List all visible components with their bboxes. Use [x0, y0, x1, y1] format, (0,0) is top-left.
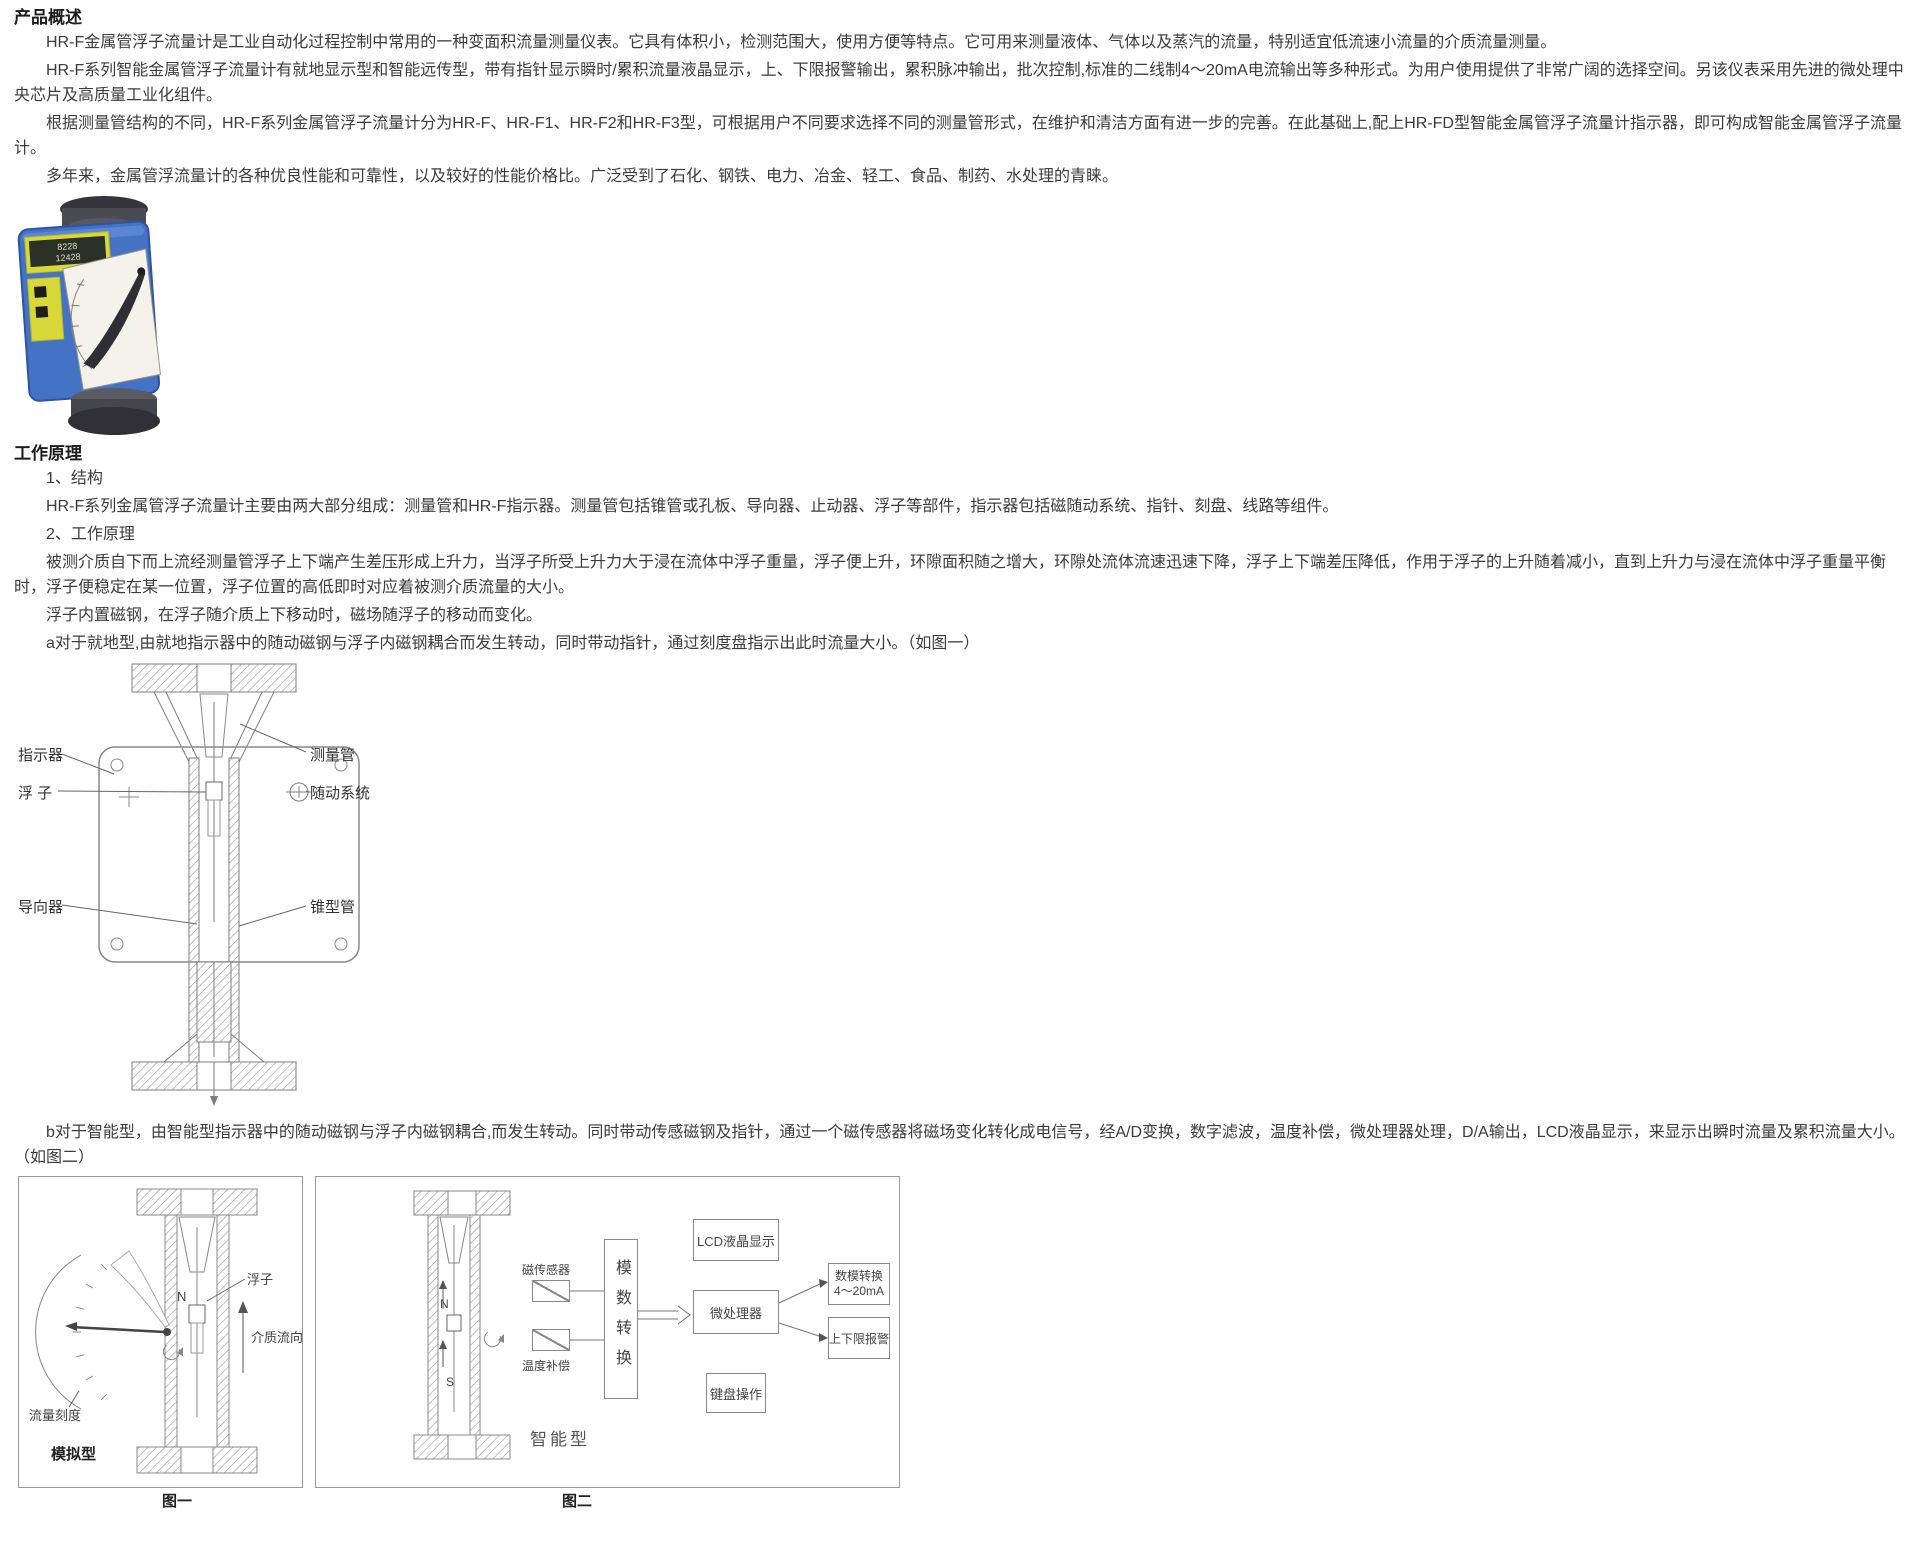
figure2-panel: N S 磁传感器 温度补偿 模数转换 LCD液晶显示 微处理器 键盘操作 数模转…	[315, 1176, 900, 1488]
center-cross	[119, 787, 139, 807]
lcd-line1: 8228	[57, 241, 78, 252]
fig2-microprocessor-box: 微处理器	[693, 1290, 779, 1334]
photo-button-1	[34, 286, 47, 298]
figure1-caption: 图一	[142, 1490, 212, 1511]
fig1-dial-wedge	[111, 1251, 169, 1327]
fig2-ad-converter-text: 模数转换	[609, 1259, 633, 1379]
overview-heading: 产品概述	[14, 6, 1906, 30]
fig2-rotation-mark	[484, 1332, 500, 1347]
principle-item1-title: 1、结构	[14, 466, 1906, 491]
fig2-magnetic-sensor-box	[532, 1280, 570, 1302]
label-indicator: 指示器	[18, 744, 63, 765]
figure-captions: 图一 图二	[14, 1490, 1906, 1516]
leader-float	[58, 791, 206, 792]
overview-paragraph-4: 多年来，金属管浮流量计的各种优良性能和可靠性，以及较好的性能价格比。广泛受到了石…	[14, 164, 1906, 189]
float-element	[206, 782, 222, 800]
leader-cone-tube	[239, 906, 306, 926]
fig1-type-label: 模拟型	[51, 1443, 96, 1464]
fig1-needle	[71, 1327, 165, 1332]
label-measuring-tube: 测量管	[310, 744, 355, 765]
fig2-limit-alarm-box: 上下限报警	[828, 1317, 890, 1359]
fig2-da-output-line1: 数模转换	[835, 1269, 883, 1284]
fig2-tube-wall-left	[428, 1215, 438, 1435]
photo-bottom-flange	[68, 388, 160, 435]
fig2-temperature-compensation-label: 温度补偿	[522, 1357, 570, 1374]
principle-smart-type-text: b对于智能型，由智能型指示器中的随动磁钢与浮子内磁钢耦合,而发生转动。同时带动传…	[14, 1120, 1906, 1170]
principle-item2-title: 2、工作原理	[14, 522, 1906, 547]
fig2-float	[447, 1315, 461, 1331]
photo-button-2	[35, 306, 48, 318]
principle-local-type-text: a对于就地型,由就地指示器中的随动磁钢与浮子内磁钢耦合而发生转动，同时带动指针，…	[14, 631, 1906, 656]
principle-item2-text: 被测介质自下而上流经测量管浮子上下端产生差压形成上升力，当浮子所受上升力大于浸在…	[14, 550, 1906, 600]
structure-diagram-graphic	[14, 662, 494, 1120]
label-follower-system: 随动系统	[310, 782, 370, 803]
leader-measuring-tube	[240, 724, 306, 752]
overview-paragraph-3: 根据测量管结构的不同，HR-F系列金属管浮子流量计分为HR-F、HR-F1、HR…	[14, 111, 1906, 161]
structure-diagram: 指示器 浮 子 导向器 测量管 随动系统 锥型管	[14, 662, 494, 1120]
overview-paragraph-2: HR-F系列智能金属管浮子流量计有就地显示型和智能远传型，带有指针显示瞬时/累积…	[14, 58, 1906, 108]
fig2-conn-mcu-da	[779, 1283, 822, 1303]
label-guide: 导向器	[18, 896, 63, 917]
fig2-magnetic-sensor-label: 磁传感器	[522, 1261, 570, 1278]
fig2-lcd-display-box: LCD液晶显示	[693, 1219, 779, 1261]
fig2-s-label: S	[446, 1375, 454, 1389]
document-page: 产品概述 HR-F金属管浮子流量计是工业自动化过程控制中常用的一种变面积流量测量…	[0, 0, 1920, 1544]
leader-guide	[62, 905, 197, 924]
label-cone-tube: 锥型管	[310, 896, 355, 917]
flowmeter-photo-graphic: 8228 12428	[16, 193, 216, 440]
fig2-keyboard-box: 键盘操作	[706, 1373, 766, 1413]
fig1-flow-direction-label: 介质流向	[251, 1327, 303, 1346]
principle-item1-text: HR-F系列金属管浮子流量计主要由两大部分组成：测量管和HR-F指示器。测量管包…	[14, 494, 1906, 519]
fig2-ad-converter-box: 模数转换	[604, 1239, 638, 1399]
fig2-type-label: 智能型	[530, 1425, 590, 1450]
overview-paragraph-1: HR-F金属管浮子流量计是工业自动化过程控制中常用的一种变面积流量测量仪表。它具…	[14, 30, 1906, 55]
figure-panels: 浮子 介质流向 流量刻度 N 模拟型	[18, 1176, 1906, 1488]
fig2-double-arrow	[638, 1306, 690, 1324]
fig2-tube-wall-right	[470, 1215, 480, 1435]
fig2-da-output-line2: 4～20mA	[834, 1284, 884, 1299]
fig2-n-label: N	[440, 1297, 449, 1311]
leader-indicator	[62, 754, 114, 774]
label-float: 浮 子	[18, 782, 52, 803]
figure2-caption: 图二	[542, 1490, 612, 1511]
fig2-temperature-compensation-box	[532, 1329, 570, 1351]
fig1-tube-wall-right	[217, 1215, 229, 1447]
fig1-n-label: N	[177, 1289, 186, 1304]
fig1-float	[189, 1305, 205, 1323]
fig1-scale-label: 流量刻度	[29, 1405, 81, 1424]
product-photo: 8228 12428	[16, 193, 216, 440]
fig2-da-output-box: 数模转换 4～20mA	[828, 1263, 890, 1305]
fig2-conn-mcu-alarm	[779, 1323, 822, 1337]
figure1-panel: 浮子 介质流向 流量刻度 N 模拟型	[18, 1176, 303, 1488]
lcd-line2: 12428	[55, 252, 81, 264]
photo-body: 8228 12428	[18, 221, 162, 402]
principle-heading: 工作原理	[14, 442, 1906, 466]
principle-magnet-text: 浮子内置磁钢，在浮子随介质上下移动时，磁场随浮子的移动而变化。	[14, 603, 1906, 628]
fig1-float-label: 浮子	[247, 1269, 273, 1288]
